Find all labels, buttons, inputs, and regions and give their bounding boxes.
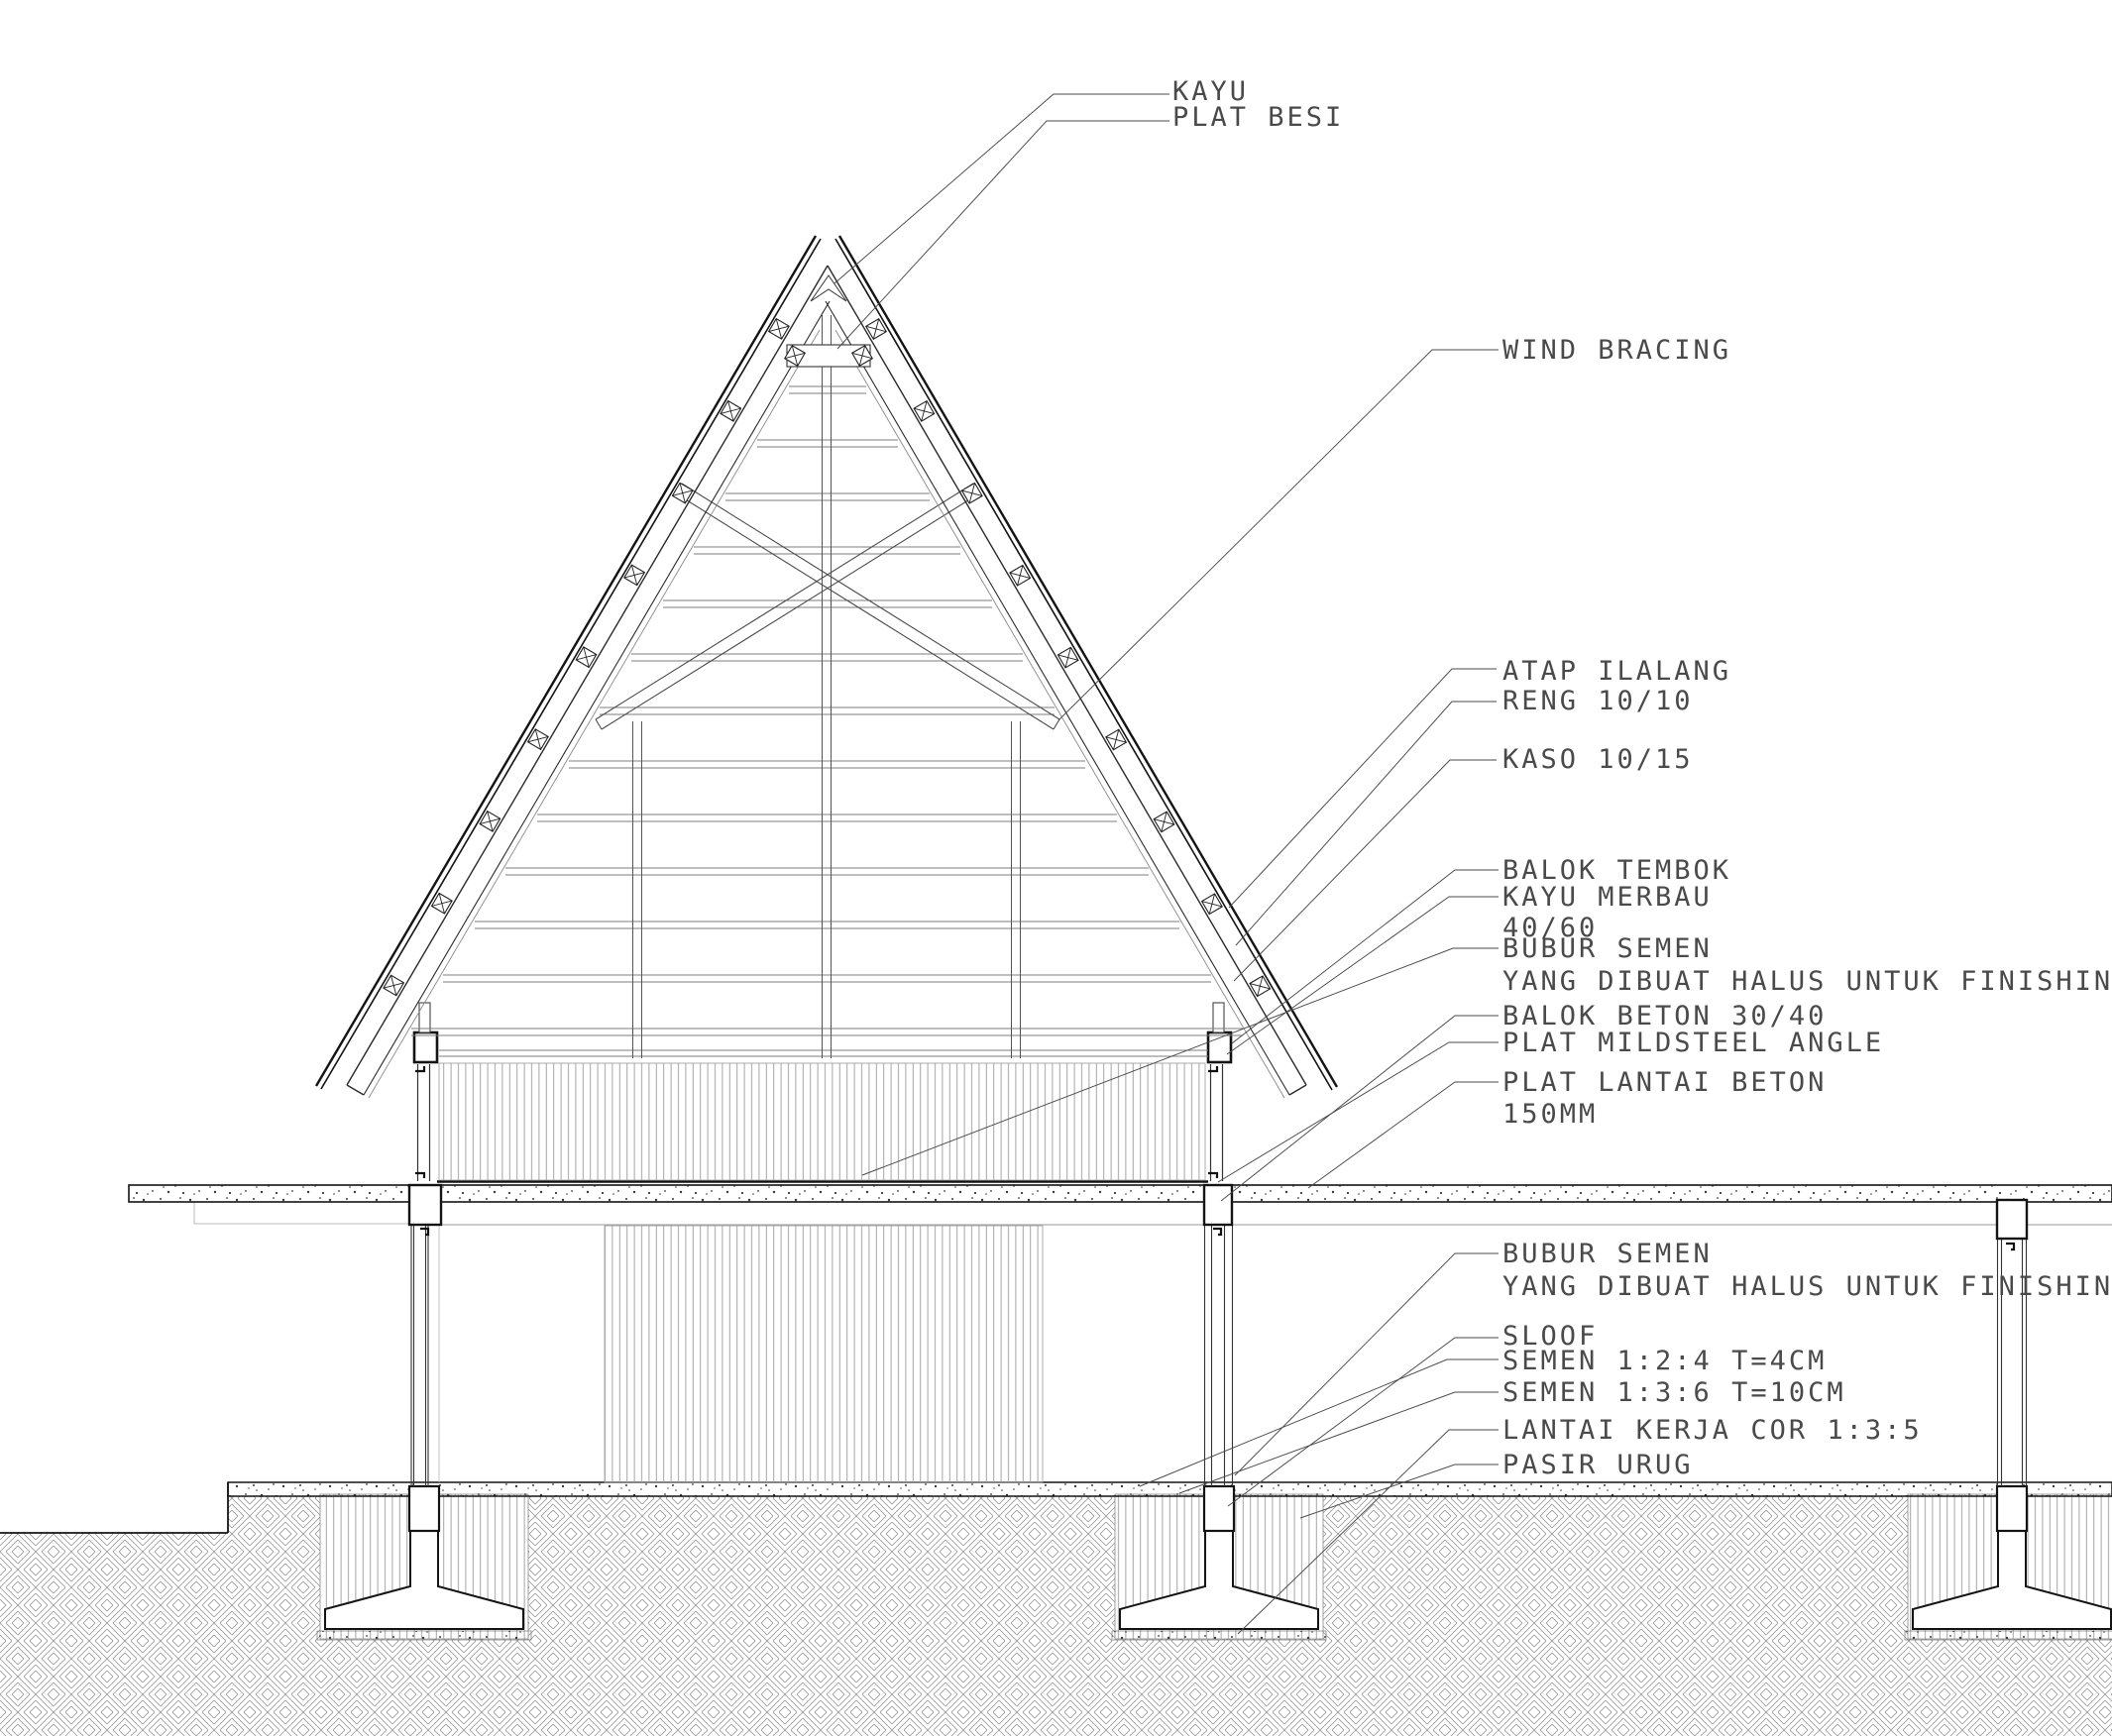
label-bubur-semen-bawah-line2: YANG DIBUAT HALUS UNTUK FINISHING: [1502, 1271, 2112, 1302]
label-kayu-merbau: KAYU MERBAU: [1502, 882, 1713, 913]
label-semen-136: SEMEN 1:3:6 T=10CM: [1502, 1377, 1846, 1408]
label-wind-bracing: WIND BRACING: [1502, 335, 1731, 366]
label-semen-124: SEMEN 1:2:4 T=4CM: [1502, 1346, 1827, 1376]
leader-atap-ilalang: [1229, 669, 1497, 908]
label-plat-lantai-line2: 150MM: [1502, 1099, 1598, 1130]
leader-semen-136: [1179, 1392, 1499, 1493]
section-drawing-canvas: KAYU PLAT BESI WIND BRACING ATAP ILALANG…: [0, 0, 2112, 1736]
eave-cap-left: [347, 1085, 364, 1095]
main-floor: [129, 1182, 2112, 1250]
left-rafter: [316, 236, 830, 1098]
wall-hatch: [439, 1063, 1205, 1180]
lean-concrete-middle: [1112, 1631, 1326, 1640]
label-plat-besi: PLAT BESI: [1172, 102, 1344, 133]
column-right-upper: [1211, 1064, 1223, 1181]
leader-reng: [1236, 702, 1497, 945]
leader-bubur-semen-bawah: [1235, 1253, 1499, 1475]
thatch-outer-right: [839, 236, 1337, 1087]
floor-beam-left: [409, 1185, 441, 1225]
leader-balok-beton: [1221, 1016, 1499, 1201]
ground: [0, 1482, 2112, 1736]
pedestal-right: [1997, 1486, 2027, 1531]
eave-cap-right: [1289, 1085, 1306, 1095]
wall-beam-right: [1208, 1032, 1231, 1062]
label-bubur-semen-atas: BUBUR SEMEN: [1502, 933, 1713, 964]
wall-post-right: [1213, 1003, 1224, 1032]
queen-posts: [633, 721, 1021, 1058]
column-left-lower: [411, 1224, 428, 1486]
leader-plat-mildsteel: [1218, 1042, 1499, 1182]
kaso-outer-left: [347, 266, 828, 1085]
wind-bracing-members: [596, 484, 1059, 729]
annotation-labels: KAYU PLAT BESI WIND BRACING ATAP ILALANG…: [1172, 76, 2112, 1480]
leader-plat-besi: [837, 121, 1169, 349]
column-left-upper: [418, 1064, 430, 1181]
label-lantai-kerja: LANTAI KERJA COR 1:3:5: [1502, 1415, 1923, 1446]
pedestal-middle: [1204, 1486, 1234, 1531]
column-middle-lower: [1205, 1225, 1233, 1486]
leader-plat-lantai: [1308, 1082, 1499, 1188]
kaso-inner-right: [826, 301, 1289, 1095]
rafter-inner-left: [369, 330, 820, 1098]
thatch-inner-right: [835, 239, 1332, 1090]
lean-concrete-right: [1905, 1631, 2112, 1640]
leader-semen-124: [1140, 1359, 1499, 1486]
overhang-recess: [194, 1202, 410, 1224]
label-plat-lantai: PLAT LANTAI BETON: [1502, 1067, 1827, 1098]
wall-post-left: [419, 1003, 430, 1032]
leader-sloof: [1228, 1338, 1499, 1506]
floor-beam-middle: [1204, 1185, 1232, 1225]
lean-concrete-left: [317, 1631, 531, 1640]
architectural-section-drawing: KAYU PLAT BESI WIND BRACING ATAP ILALANG…: [0, 0, 2112, 1736]
label-pasir-urug: PASIR URUG: [1502, 1450, 1694, 1480]
label-plat-mildsteel: PLAT MILDSTEEL ANGLE: [1502, 1028, 1884, 1058]
thatch-inner-left: [321, 239, 821, 1089]
floor-beam-right: [1997, 1200, 2027, 1239]
kaso-outer-right: [828, 266, 1306, 1085]
leader-kayu-merbau: [1227, 897, 1499, 1054]
label-reng: RENG 10/10: [1502, 686, 1694, 716]
right-rafter: [826, 236, 1337, 1098]
leader-wind-bracing: [1058, 350, 1499, 720]
reng-blocks-left: [384, 319, 789, 996]
label-bubur-semen-bawah: BUBUR SEMEN: [1502, 1239, 1713, 1269]
label-atap-ilalang: ATAP ILALANG: [1502, 656, 1731, 687]
rafter-inner-right: [835, 330, 1284, 1098]
label-bubur-semen-atas-line2: YANG DIBUAT HALUS UNTUK FINISHING: [1502, 966, 2112, 997]
reng-blocks-right: [866, 319, 1271, 997]
roof-structure: [316, 236, 1337, 1098]
ground-hatch: [0, 1494, 2112, 1736]
roof-battens: [411, 386, 1243, 1056]
wall-beam-left: [414, 1032, 437, 1062]
kaso-inner-left: [364, 301, 830, 1095]
underfloor-wall-hatch: [605, 1226, 1043, 1482]
pedestal-left: [409, 1486, 439, 1531]
label-kaso: KASO 10/15: [1502, 744, 1694, 775]
king-post: [823, 315, 832, 1058]
ground-slab-band: [228, 1482, 2112, 1496]
leader-kayu: [834, 94, 1169, 283]
